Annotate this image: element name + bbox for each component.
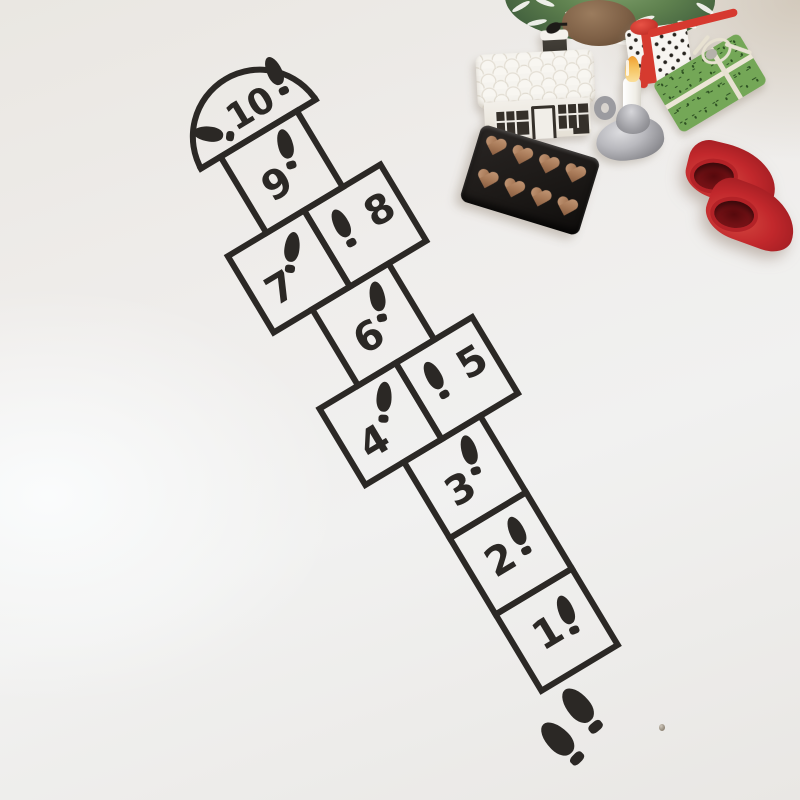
footprint-sole-icon [327, 206, 354, 240]
footprint-heel-icon [567, 625, 579, 636]
footprint-heel-icon [378, 414, 388, 423]
house-door [531, 105, 557, 139]
footprint-heel-icon [519, 545, 531, 556]
footprint-sole-icon [274, 128, 296, 161]
holder-socket [616, 104, 650, 134]
footprint-sole-icon [419, 359, 447, 393]
footprint-heel-icon [469, 466, 481, 477]
chocolate-heart [508, 144, 535, 170]
footprint-sole-icon [261, 54, 287, 88]
footprint-icon [282, 231, 302, 274]
chocolate-heart [553, 195, 580, 221]
footprint-icon [192, 125, 235, 145]
clog-right [699, 172, 800, 258]
footprint-icon [375, 381, 392, 423]
red-clogs [680, 140, 800, 252]
cell-number-8: 8 [358, 186, 402, 235]
candle-flame-tip [625, 56, 640, 82]
footprint-heel-icon [277, 85, 289, 96]
footprint-sole-icon [283, 231, 302, 263]
chocolate-heart [474, 168, 501, 194]
footprint-heel-icon [284, 264, 295, 273]
footprint-heel-icon [345, 237, 358, 249]
house-base-trim [573, 127, 589, 134]
footprint-icon [327, 206, 359, 249]
chocolate-heart [527, 186, 554, 212]
footprint-icon [419, 359, 452, 402]
floor-speck [659, 724, 665, 731]
chocolate-heart [500, 177, 527, 203]
chocolate-heart [561, 162, 588, 188]
chocolate-heart [535, 153, 562, 179]
chocolate-tray [459, 124, 601, 237]
footprint-heel-icon [375, 313, 386, 323]
candle-holder [592, 54, 672, 164]
cell-number-5: 5 [450, 338, 494, 387]
photo-scene: 10 9 7 8 6 [0, 0, 800, 800]
cell-number-4: 4 [352, 418, 396, 467]
footprint-heel-icon [438, 389, 451, 401]
footprint-heel-icon [226, 131, 235, 142]
chocolate-heart [482, 135, 509, 161]
footprint-sole-icon [367, 280, 387, 312]
footprint-heel-icon [285, 160, 297, 170]
footprint-sole-icon [192, 125, 224, 144]
footprint-sole-icon [376, 381, 393, 412]
holder-handle [594, 96, 616, 120]
